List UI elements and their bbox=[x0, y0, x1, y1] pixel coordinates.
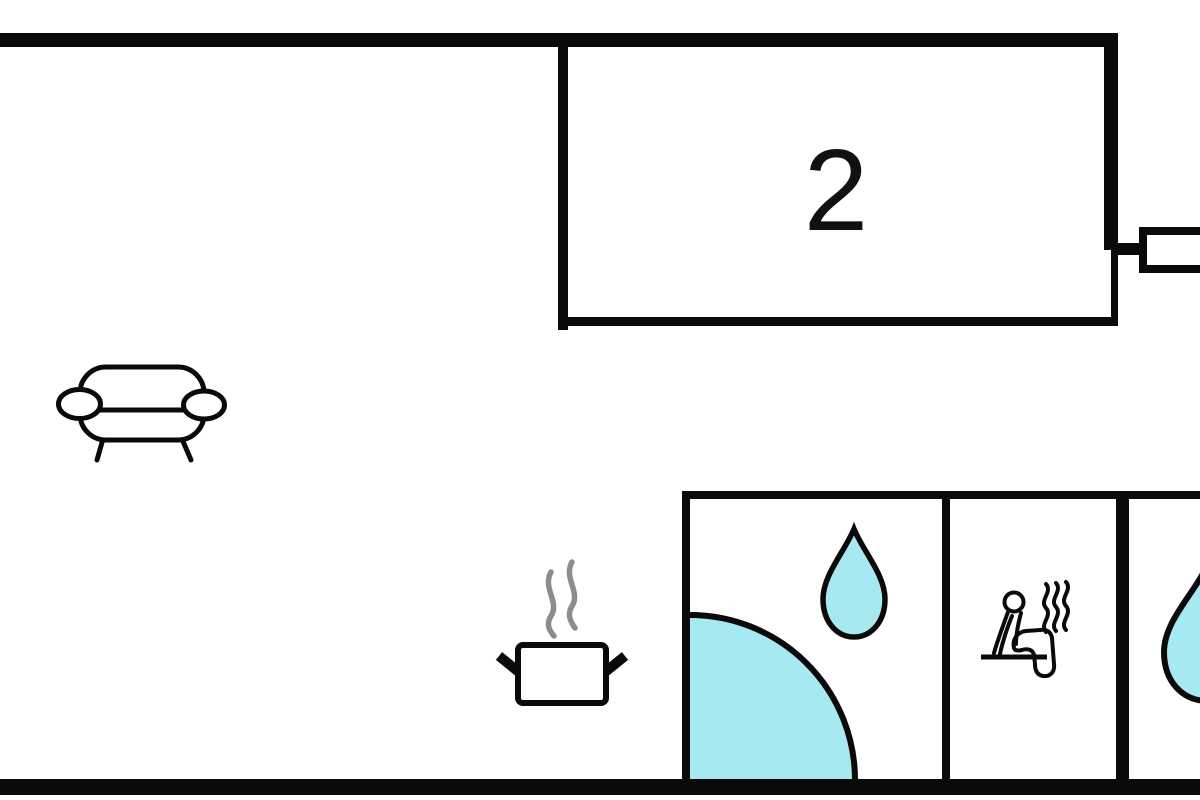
sauna-person-head bbox=[1005, 593, 1024, 612]
room-label: 2 bbox=[804, 125, 869, 255]
wall-room2-right-thick bbox=[1104, 33, 1118, 250]
sauna-person-icon bbox=[981, 582, 1068, 676]
sofa-leg-right bbox=[182, 439, 191, 460]
heat-wave-2 bbox=[1054, 583, 1058, 631]
wall-room2-bottom bbox=[558, 317, 1118, 326]
radiator-inner bbox=[1147, 235, 1200, 265]
sauna-person-torso bbox=[1016, 613, 1021, 644]
heat-wave-1 bbox=[1044, 584, 1048, 632]
water-drop-icon bbox=[823, 529, 885, 637]
floorplan: 2 bbox=[0, 0, 1200, 800]
sofa-icon bbox=[59, 367, 225, 460]
floorplan-canvas: 2 bbox=[0, 0, 1200, 800]
wall-bath-sauna bbox=[942, 491, 950, 779]
heat-waves-icon bbox=[1044, 582, 1068, 632]
wall-bottom bbox=[0, 779, 1200, 795]
pot-body bbox=[518, 645, 606, 703]
steam-line-left bbox=[548, 572, 554, 636]
sauna-person-leg bbox=[1014, 630, 1055, 676]
wall-sauna-right bbox=[1116, 491, 1129, 779]
cooking-pot-icon bbox=[499, 562, 625, 703]
heat-wave-3 bbox=[1064, 582, 1068, 630]
radiator-connector bbox=[1118, 243, 1140, 255]
wall-bath-left bbox=[682, 491, 690, 779]
wall-room2-right-thin bbox=[1111, 250, 1118, 326]
steam-line-right bbox=[569, 562, 575, 628]
wall-room2-left bbox=[558, 33, 568, 330]
water-drop-icon-right bbox=[1164, 563, 1200, 701]
sofa-armrest-left bbox=[59, 390, 101, 419]
sofa-armrest-right bbox=[184, 391, 225, 419]
